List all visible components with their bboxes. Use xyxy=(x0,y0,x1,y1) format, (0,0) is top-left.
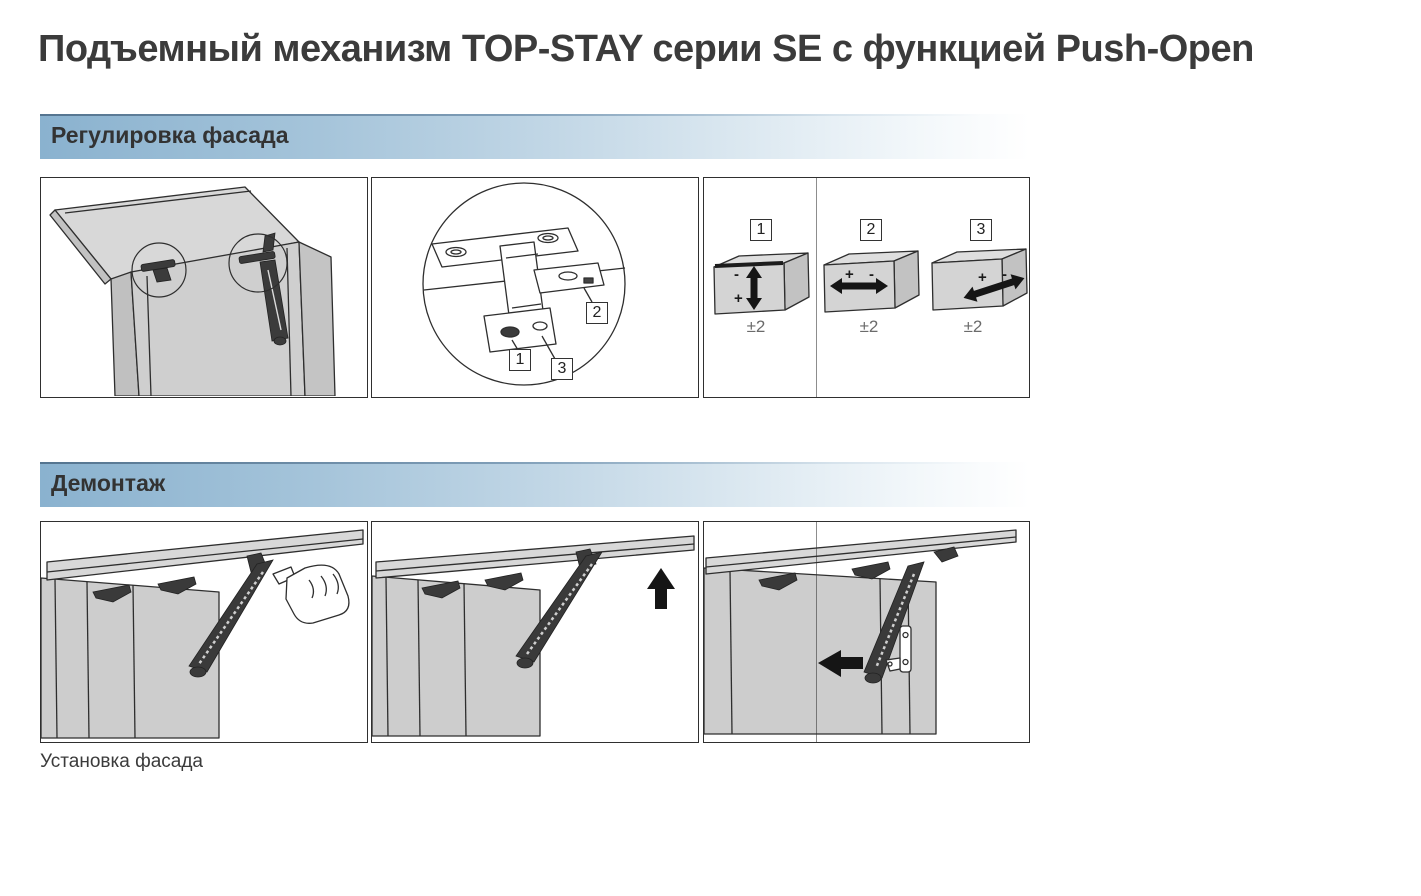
header-top-border xyxy=(40,462,1030,464)
instruction-page: Подъемный механизм TOP-STAY серии SE с ф… xyxy=(0,0,1421,896)
cabinet-open-flap-drawing xyxy=(41,178,366,396)
callout-2: 2 xyxy=(586,302,608,324)
footer-caption: Установка фасада xyxy=(40,751,203,773)
plus-sign: + xyxy=(978,273,987,283)
section-header-label: Демонтаж xyxy=(51,470,165,497)
adjust-2-range: ±2 xyxy=(847,317,891,337)
frame-seam xyxy=(816,522,817,742)
figure-removal-step2 xyxy=(371,521,699,743)
up-arrow-icon xyxy=(647,568,675,609)
figure-removal-step3 xyxy=(703,521,1030,743)
removal-step2-drawing xyxy=(372,522,697,741)
page-title: Подъемный механизм TOP-STAY серии SE с ф… xyxy=(38,28,1254,71)
removal-step1-drawing xyxy=(41,522,366,741)
removal-step3-drawing xyxy=(704,522,1028,741)
adjust-3-range: ±2 xyxy=(951,317,995,337)
hand-pointing-icon xyxy=(273,565,349,623)
minus-sign: - xyxy=(869,270,874,280)
figure-removal-step1 xyxy=(40,521,368,743)
plus-sign: + xyxy=(845,270,854,280)
callout-1: 1 xyxy=(509,349,531,371)
plus-sign: + xyxy=(734,294,743,304)
adjust-1-number: 1 xyxy=(750,219,772,241)
hinge-closeup-drawing xyxy=(372,178,697,396)
adjustment-boxes-drawing xyxy=(704,178,1028,396)
header-top-border xyxy=(40,114,1030,116)
figure-adjustment-directions: 1 - + ±2 2 + - ±2 3 + - ±2 xyxy=(703,177,1030,398)
minus-sign: - xyxy=(1002,270,1007,280)
adjust-2-number: 2 xyxy=(860,219,882,241)
figure-hinge-closeup: 1 3 2 xyxy=(371,177,699,398)
adjust-1-range: ±2 xyxy=(734,317,778,337)
section-header-adjustment: Регулировка фасада xyxy=(40,114,1030,159)
section-header-label: Регулировка фасада xyxy=(51,122,288,149)
callout-3: 3 xyxy=(551,358,573,380)
figure-adjustment-overview xyxy=(40,177,368,398)
minus-sign: - xyxy=(734,270,739,280)
adjust-3-number: 3 xyxy=(970,219,992,241)
section-header-removal: Демонтаж xyxy=(40,462,1030,507)
frame-seam xyxy=(816,178,817,397)
